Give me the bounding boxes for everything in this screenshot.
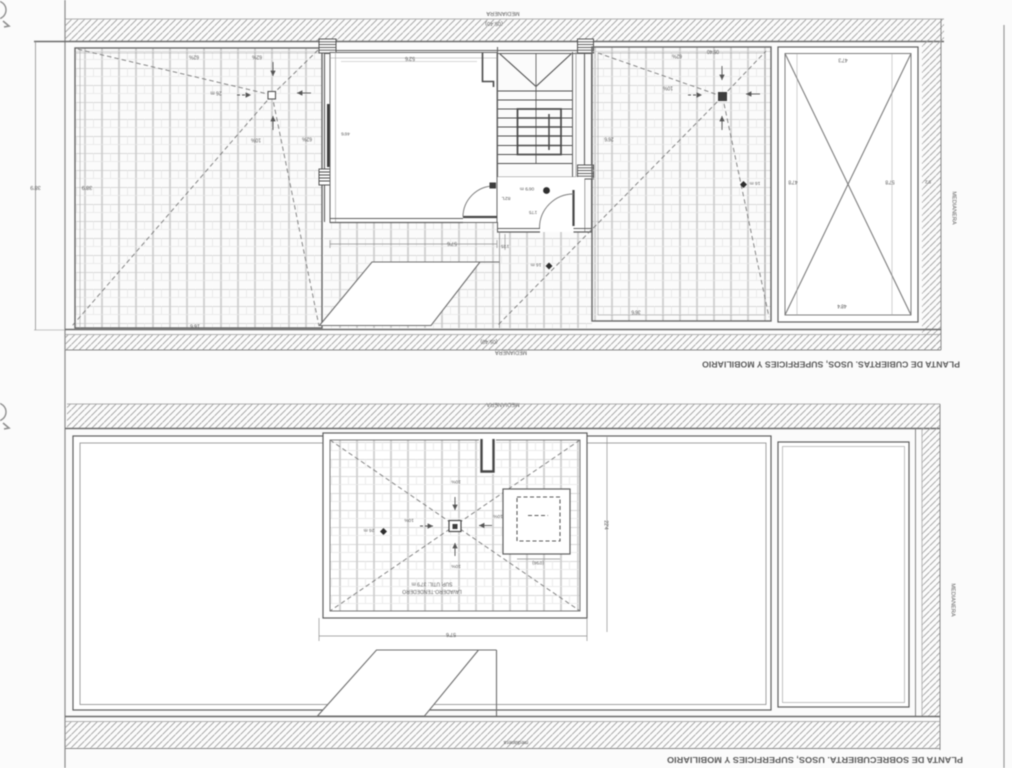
svg-text:62%: 62% [251,54,262,60]
svg-text:1'25: 1'25 [500,244,509,249]
svg-text:10%: 10% [250,137,261,143]
svg-text:10%: 10% [403,517,413,523]
svg-text:57'6: 57'6 [447,240,457,246]
svg-text:MEDIANERA: MEDIANERA [486,10,520,16]
svg-text:1'75: 1'75 [528,210,537,215]
svg-text:PLANTA DE SOBRECUBIERTA. USOS,: PLANTA DE SOBRECUBIERTA. USOS, SUPERFICI… [667,755,963,765]
svg-text:06'9 m: 06'9 m [520,186,534,192]
svg-text:medianera: medianera [504,739,529,745]
svg-text:47'3: 47'3 [838,57,848,63]
svg-text:SUP. UTIL: 37'9 m: SUP. UTIL: 37'9 m [412,581,453,587]
svg-text:22'4: 22'4 [603,520,609,530]
svg-text:MEDIANERA: MEDIANERA [951,191,957,225]
svg-text:LAVADERO-TENDEDERO: LAVADERO-TENDEDERO [402,588,462,594]
svg-text:10%: 10% [450,479,460,485]
svg-text:26 m: 26 m [364,527,375,533]
svg-text:26'6: 26'6 [604,136,614,142]
svg-text:05'40: 05'40 [707,48,719,54]
svg-text:82'L: 82'L [501,195,510,201]
svg-text:48'4: 48'4 [837,303,847,309]
svg-text:36'6: 36'6 [631,309,641,315]
svg-text:47'8: 47'8 [788,179,798,185]
svg-text:16'6: 16'6 [190,323,200,329]
svg-text:57'6: 57'6 [446,631,456,637]
svg-text:38'9: 38'9 [30,184,40,190]
svg-text:62%: 62% [188,54,199,60]
svg-text:38'9: 38'9 [82,184,92,190]
svg-text:(0'96): (0'96) [532,561,544,566]
svg-text:10%: 10% [450,563,460,569]
svg-text:5'2: 5'2 [925,180,931,185]
svg-text:(05.40): (05.40) [480,338,497,344]
svg-text:26 m: 26 m [210,90,221,96]
svg-text:16 m: 16 m [531,262,542,268]
svg-text:PLANTA DE CUBIERTAS. USOS, SUP: PLANTA DE CUBIERTAS. USOS, SUPERFICIES Y… [702,360,960,370]
svg-text:10%: 10% [662,85,673,91]
svg-text:62%: 62% [671,53,682,59]
svg-text:57'8: 57'8 [885,179,895,185]
svg-text:MEDIANERA: MEDIANERA [950,583,956,617]
svg-text:62%: 62% [301,136,312,142]
svg-text:52'6: 52'6 [405,55,415,61]
svg-text:16 m: 16 m [750,180,761,186]
svg-text:10%: 10% [492,513,502,519]
svg-text:46'6: 46'6 [341,131,350,137]
svg-text:MEDIANERA: MEDIANERA [495,349,527,355]
